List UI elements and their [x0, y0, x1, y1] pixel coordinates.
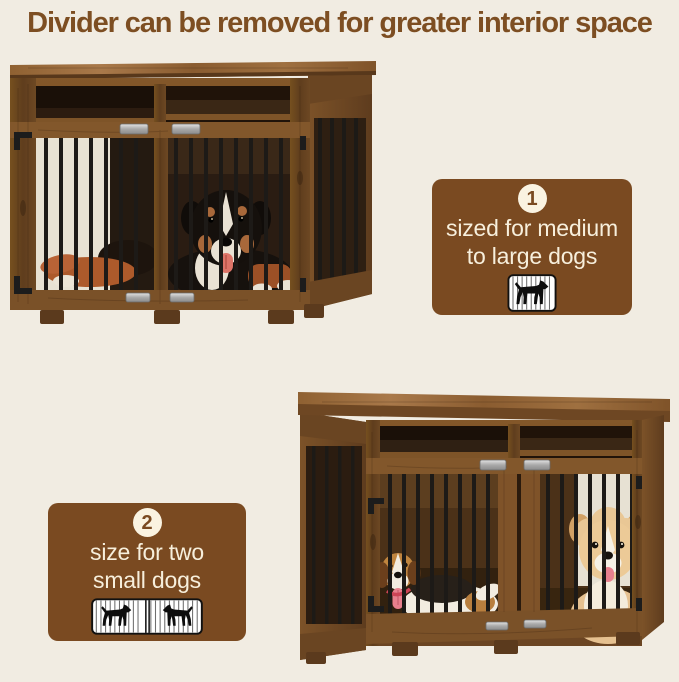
badge-number: 2	[142, 509, 153, 537]
badge-text-line: to large dogs	[467, 242, 597, 270]
crate2-side-panel	[300, 412, 366, 660]
feature-badge-medium-large: 1 sized for medium to large dogs	[432, 179, 632, 315]
badge-number-circle: 1	[518, 184, 547, 213]
badge-text-line: small dogs	[93, 566, 201, 594]
badge-text-line: sized for medium	[446, 214, 618, 242]
crate-two-dogs-illustration	[292, 382, 676, 677]
crate2-top-board	[298, 392, 670, 422]
photo-crate-large-dog	[8, 58, 380, 344]
badge-icon-wrap	[91, 598, 203, 641]
single-dog-crate-icon	[507, 274, 557, 312]
photo-crate-two-dogs	[292, 382, 676, 677]
badge-icon-wrap	[507, 274, 557, 318]
badge-number: 1	[527, 185, 538, 213]
badge-text-line: size for two	[90, 538, 204, 566]
two-small-dogs-crate-icon	[91, 598, 203, 635]
crate1-side-panel	[308, 67, 372, 310]
crate-large-dog-illustration	[8, 58, 380, 344]
headline: Divider can be removed for greater inter…	[0, 7, 679, 40]
product-infographic: Divider can be removed for greater inter…	[0, 0, 679, 679]
feature-badge-two-small: 2 size for two small dogs	[48, 503, 246, 641]
badge-number-circle: 2	[133, 508, 162, 537]
